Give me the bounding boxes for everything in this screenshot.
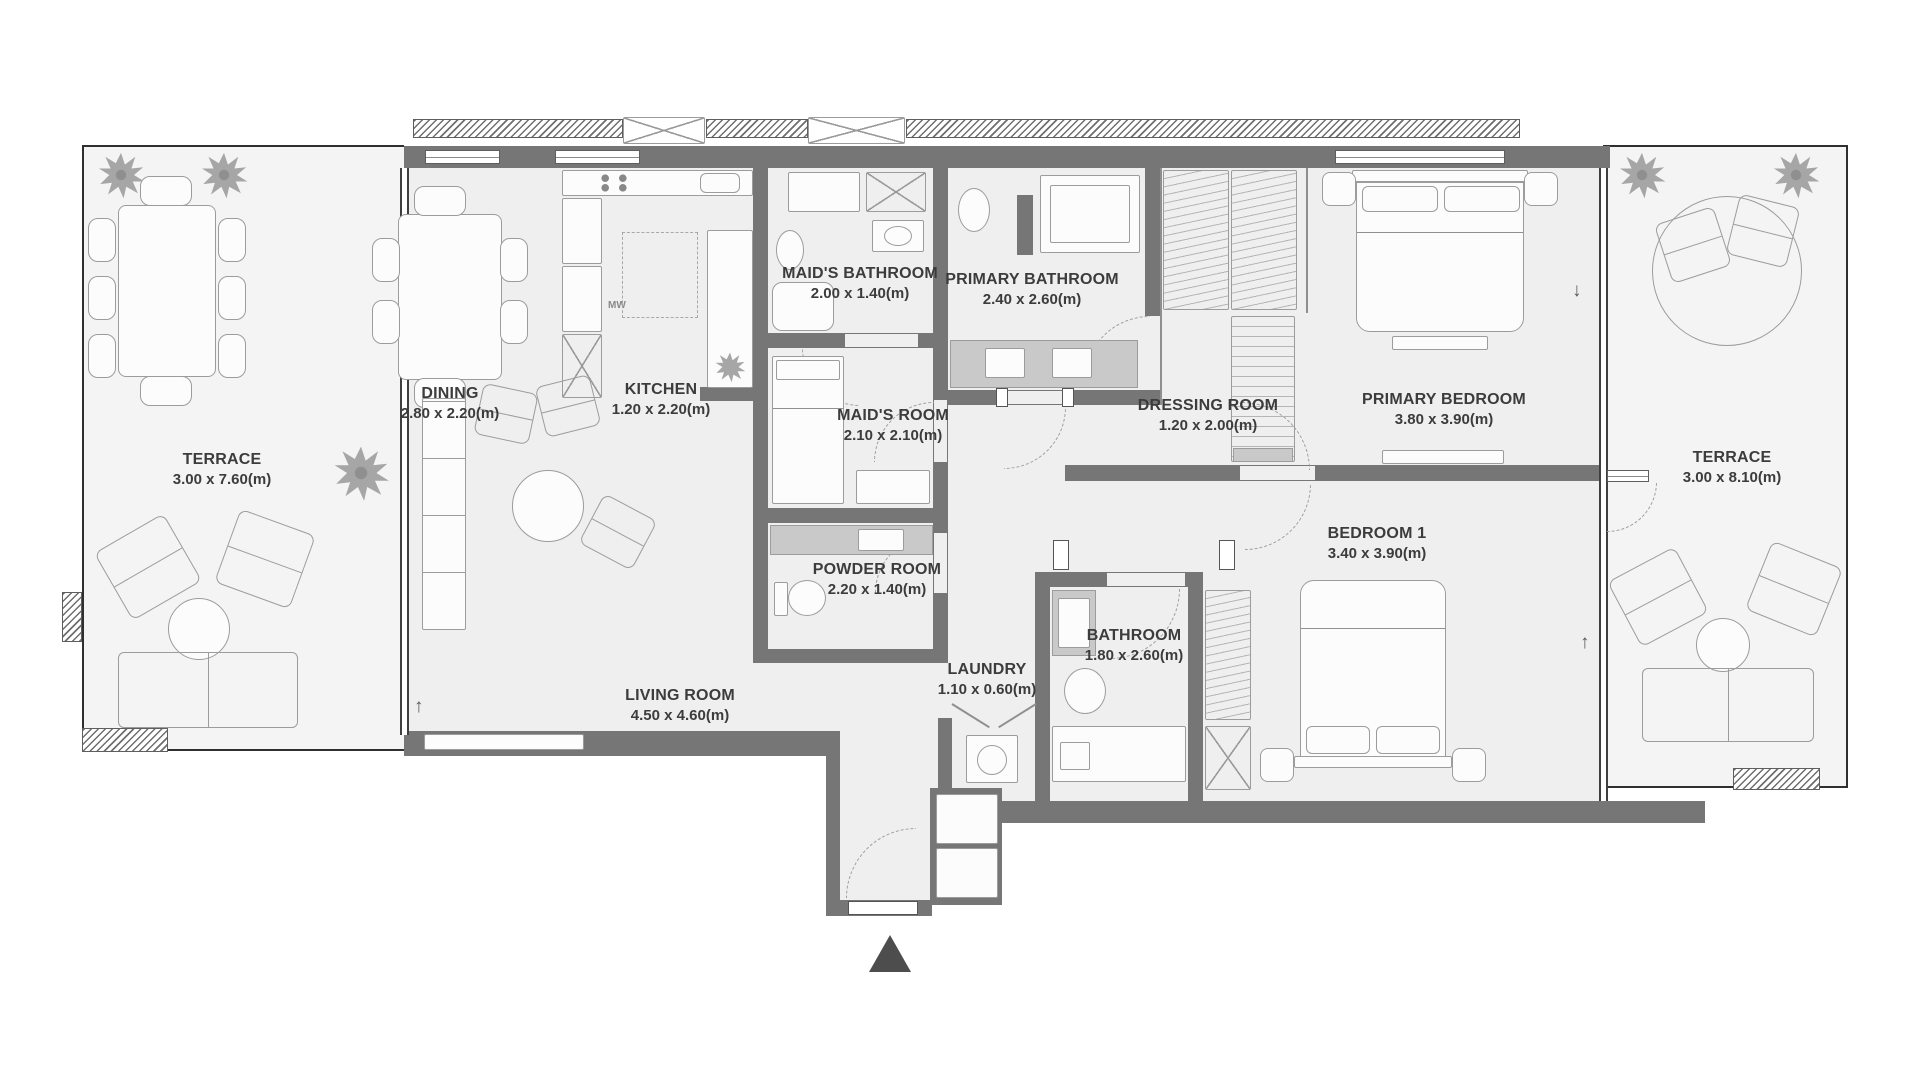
room-label-laundry: LAUNDRY1.10 x 0.60(m) xyxy=(938,660,1036,700)
powder-vanity-counter xyxy=(770,525,933,555)
bathroom-vanity-counter xyxy=(950,340,1138,388)
sofa xyxy=(422,398,466,630)
closet xyxy=(1205,590,1251,720)
toilet-tank xyxy=(774,582,788,616)
nightstand xyxy=(1260,748,1294,782)
terrace-door-leaf xyxy=(1607,470,1649,482)
ac-unit xyxy=(808,117,905,144)
closet xyxy=(1231,170,1297,310)
plant-icon xyxy=(1616,148,1668,202)
outdoor-sofa xyxy=(118,652,298,728)
window xyxy=(425,150,500,164)
blanket-line xyxy=(1357,232,1523,233)
headboard xyxy=(1352,170,1528,182)
door-jamb xyxy=(1062,388,1074,407)
sink-basin xyxy=(985,348,1025,378)
tv-console xyxy=(424,734,584,750)
pillow xyxy=(1362,186,1438,212)
wall xyxy=(826,731,840,916)
wall xyxy=(1145,168,1160,316)
chair xyxy=(140,376,192,406)
shaft xyxy=(1205,726,1251,790)
chair xyxy=(88,218,116,262)
chair xyxy=(140,176,192,206)
window xyxy=(1335,150,1505,164)
kitchen-cabinet xyxy=(562,266,602,332)
railing-hatch xyxy=(706,119,808,138)
nightstand xyxy=(1322,172,1356,206)
chair xyxy=(88,334,116,378)
pillow xyxy=(1376,726,1440,754)
direction-arrow-icon: ↑ xyxy=(414,696,424,718)
room-label-primary-bathroom: PRIMARY BATHROOM2.40 x 2.60(m) xyxy=(945,270,1119,310)
sink-basin xyxy=(858,529,904,551)
blanket-line xyxy=(773,408,843,409)
upper-cabinet-outline xyxy=(622,232,698,318)
chair xyxy=(372,300,400,344)
chair xyxy=(88,276,116,320)
wall xyxy=(753,168,768,663)
kitchen-cabinet xyxy=(562,198,602,264)
wall xyxy=(753,508,948,523)
room-label-terrace-right: TERRACE3.00 x 8.10(m) xyxy=(1683,448,1781,488)
nightstand xyxy=(1452,748,1486,782)
kitchen-sink xyxy=(700,173,740,193)
sink-basin xyxy=(884,226,912,246)
room-label-living-room: LIVING ROOM4.50 x 4.60(m) xyxy=(625,686,735,726)
door-opening xyxy=(1107,573,1185,586)
wall xyxy=(1065,465,1608,481)
dresser xyxy=(856,470,930,504)
dining-table xyxy=(398,214,502,380)
closet xyxy=(1163,170,1229,310)
utility-box xyxy=(866,172,926,212)
shower-partition-wall xyxy=(1017,195,1033,255)
outdoor-sofa xyxy=(1642,668,1814,742)
entrance-marker-icon xyxy=(869,935,911,972)
sink-basin xyxy=(1052,348,1092,378)
direction-arrow-icon: ↓ xyxy=(1572,280,1582,302)
bed-bench xyxy=(1392,336,1488,350)
tv-console xyxy=(1382,450,1504,464)
room-label-powder-room: POWDER ROOM2.20 x 1.40(m) xyxy=(813,560,941,600)
utility-box xyxy=(788,172,860,212)
room-label-maids-bathroom: MAID'S BATHROOM2.00 x 1.40(m) xyxy=(782,264,938,304)
stove-icon xyxy=(594,171,634,195)
wall xyxy=(753,649,948,663)
pillow xyxy=(1306,726,1370,754)
room-label-dining: DINING2.80 x 2.20(m) xyxy=(401,384,499,424)
coffee-table xyxy=(168,598,230,660)
corner-hatch xyxy=(1733,768,1820,790)
nightstand xyxy=(1524,172,1558,206)
coffee-table xyxy=(1696,618,1750,672)
blanket-line xyxy=(1301,628,1445,629)
partition-line xyxy=(1306,168,1308,313)
wardrobe xyxy=(1231,316,1295,462)
edge-hatch xyxy=(62,592,82,642)
chair xyxy=(500,238,528,282)
outdoor-dining-table xyxy=(118,205,216,377)
plant-icon xyxy=(198,148,250,202)
door-jamb xyxy=(996,388,1008,407)
wall xyxy=(938,718,952,801)
room-label-bedroom-1: BEDROOM 13.40 x 3.90(m) xyxy=(1328,524,1427,564)
pillow xyxy=(776,360,840,380)
railing-hatch xyxy=(413,119,623,138)
wall xyxy=(1188,572,1203,801)
wall xyxy=(1000,801,1705,823)
chair xyxy=(372,238,400,282)
washing-machine-drum xyxy=(977,745,1007,775)
chair xyxy=(500,300,528,344)
room-label-primary-bedroom: PRIMARY BEDROOM3.80 x 3.90(m) xyxy=(1362,390,1526,430)
railing-hatch xyxy=(906,119,1520,138)
partition-line xyxy=(1160,168,1162,405)
plant-icon xyxy=(330,440,392,506)
corner-hatch xyxy=(82,728,168,752)
chair xyxy=(218,276,246,320)
window xyxy=(555,150,640,164)
coffee-table xyxy=(512,470,584,542)
sink-basin xyxy=(1060,742,1090,770)
door-opening xyxy=(1008,391,1062,404)
plant-icon xyxy=(712,350,748,384)
entry-cabinet xyxy=(936,848,998,898)
chair xyxy=(414,186,466,216)
room-label-dressing-room: DRESSING ROOM1.20 x 2.00(m) xyxy=(1138,396,1278,436)
shower-tray xyxy=(1050,185,1130,243)
room-label-maids-room: MAID'S ROOM2.10 x 2.10(m) xyxy=(837,406,949,446)
glass-wall xyxy=(1599,168,1608,801)
direction-arrow-icon: ↑ xyxy=(1580,632,1590,654)
chair xyxy=(218,334,246,378)
room-label-bathroom: BATHROOM1.80 x 2.60(m) xyxy=(1085,626,1183,666)
room-label-terrace-left: TERRACE3.00 x 7.60(m) xyxy=(173,450,271,490)
entry-door-threshold xyxy=(848,901,918,915)
pillow xyxy=(1444,186,1520,212)
entry-cabinet xyxy=(936,794,998,844)
door-jamb xyxy=(1053,540,1069,570)
floor-plan: MW ↓ ↑ xyxy=(0,0,1920,1080)
wall xyxy=(933,168,948,523)
door-opening xyxy=(845,334,918,347)
chair xyxy=(218,218,246,262)
ac-unit xyxy=(623,117,705,144)
room-label-kitchen: KITCHEN1.20 x 2.20(m) xyxy=(612,380,710,420)
headboard xyxy=(1294,756,1452,768)
plant-icon xyxy=(1770,148,1822,202)
toilet-icon xyxy=(958,188,990,232)
toilet-icon xyxy=(1064,668,1106,714)
wardrobe-base xyxy=(1233,448,1293,462)
wall xyxy=(1035,572,1050,801)
door-jamb xyxy=(1219,540,1235,570)
